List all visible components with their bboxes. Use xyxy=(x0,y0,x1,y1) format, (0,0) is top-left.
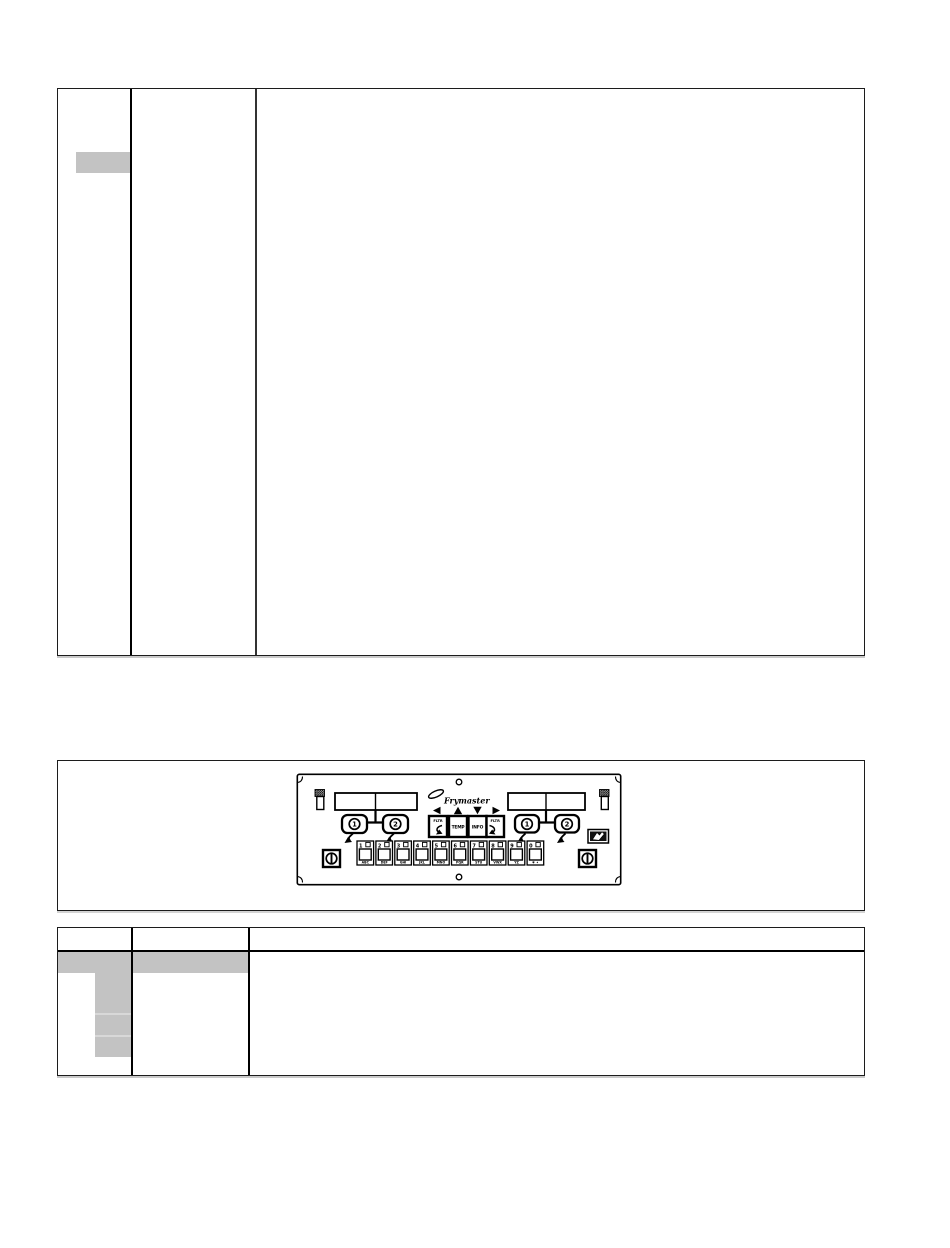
top-table-divider-2 xyxy=(255,89,257,655)
info-label: INFO xyxy=(472,825,484,831)
key-led-icon xyxy=(460,842,464,846)
heat-indicator-left-icon xyxy=(315,790,325,810)
key-led-icon xyxy=(404,842,408,846)
top-table-divider-1 xyxy=(130,89,132,655)
key-led-icon xyxy=(479,842,483,846)
key-letters: ✱ ✦ xyxy=(532,861,539,865)
power-button-right xyxy=(579,850,596,867)
key-letters: YZ xyxy=(513,861,519,865)
key-led-icon xyxy=(536,842,540,846)
controller-figure-box: Frymaster 1 2 xyxy=(57,760,865,911)
key-led-icon xyxy=(385,842,389,846)
highlight-strip-col1 xyxy=(95,973,131,1057)
highlight-band-row xyxy=(58,952,249,973)
key-letters: VWX xyxy=(493,861,502,865)
screw-hole-bottom-icon xyxy=(456,874,462,880)
highlight-cell-top xyxy=(76,152,131,173)
bottom-table-divider-2 xyxy=(248,928,250,1075)
key-led-icon xyxy=(517,842,521,846)
left-display xyxy=(335,793,417,810)
row-separator xyxy=(95,1035,131,1037)
screw-hole-top-icon xyxy=(456,779,462,785)
keypad-key-5: 5 MNO xyxy=(433,841,450,865)
filter-left-label: FLTR xyxy=(433,819,443,823)
keypad-key-2: 2 DEF xyxy=(376,841,393,865)
key-led-icon xyxy=(366,842,370,846)
vat1-label-left: 1 xyxy=(352,821,357,829)
key-letters: JKL xyxy=(418,861,425,865)
keypad-key-7: 7 STU xyxy=(470,841,487,865)
brand-name: Frymaster xyxy=(443,796,490,806)
keypad-key-6: 6 PQR xyxy=(452,841,469,865)
heat-indicator-right-icon xyxy=(600,790,610,810)
keypad-key-0: 0 ✱ ✦ xyxy=(527,841,544,865)
keypad-key-9: 9 YZ xyxy=(508,841,525,865)
key-letters: DEF xyxy=(381,861,388,865)
row-separator xyxy=(95,1013,131,1015)
key-led-icon xyxy=(498,842,502,846)
keypad-key-8: 8 VWX xyxy=(489,841,506,865)
header-underline xyxy=(58,950,864,952)
bottom-table-divider-1 xyxy=(131,928,133,1075)
keypad-key-4: 4 JKL xyxy=(414,841,431,865)
bottom-procedure-table xyxy=(57,927,865,1076)
key-letters: PQR xyxy=(456,861,464,865)
keypad-key-1: 1 ABC xyxy=(357,841,374,865)
power-button-left xyxy=(323,850,340,867)
controller-panel-figure: Frymaster 1 2 xyxy=(296,773,622,886)
vat2-label-left: 2 xyxy=(393,821,398,829)
key-letters: GHI xyxy=(400,861,406,865)
key-letters: ABC xyxy=(362,861,370,865)
vat1-label-right: 1 xyxy=(525,821,530,829)
top-procedure-table xyxy=(57,88,865,656)
vat2-label-right: 2 xyxy=(565,821,570,829)
key-letters: MNO xyxy=(437,861,446,865)
language-button xyxy=(588,830,609,844)
key-led-icon xyxy=(423,842,427,846)
temp-label: TEMP xyxy=(452,825,466,831)
filter-right-label: FLTR xyxy=(491,819,501,823)
key-letters: STU xyxy=(475,861,482,865)
keypad-key-3: 3 GHI xyxy=(395,841,412,865)
key-led-icon xyxy=(441,842,445,846)
right-display xyxy=(508,793,585,810)
manual-page: Frymaster 1 2 xyxy=(0,0,950,1248)
